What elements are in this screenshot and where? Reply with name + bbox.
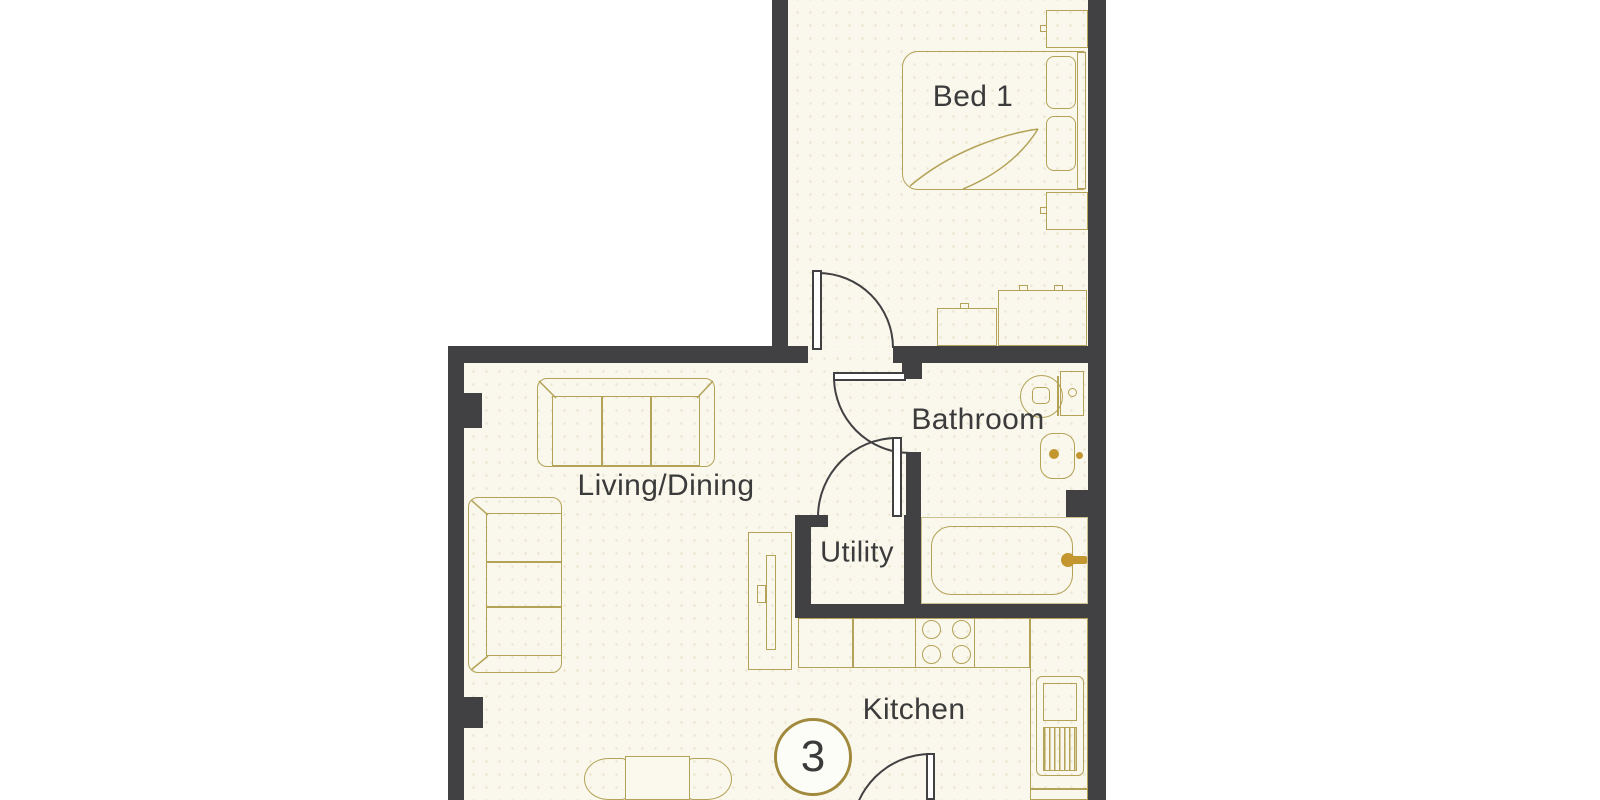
hob-burner	[952, 620, 971, 639]
hob-burner	[952, 645, 971, 664]
sofa-left-cushion-divider	[487, 561, 561, 563]
appliance-door	[1043, 683, 1077, 721]
toilet-seat-line	[1057, 376, 1059, 416]
kitchen-door-leaf	[926, 753, 935, 800]
dresser-knob	[1054, 285, 1063, 291]
wall-living-top	[448, 346, 788, 363]
wall-right-outer	[1088, 0, 1106, 800]
basin-tap	[1076, 452, 1083, 459]
bathroom-door-leaf	[833, 372, 906, 381]
wall-pier	[464, 697, 483, 728]
appliance-vent	[1043, 727, 1077, 771]
sofa-left-cushion-divider	[487, 606, 561, 608]
nightstand-knob	[1040, 207, 1047, 214]
tv-mount	[757, 585, 766, 603]
sofa-top-cushion-divider	[650, 397, 652, 465]
wall-bedroom-door-stub	[788, 346, 808, 363]
wall-kitchen-top	[795, 604, 1088, 618]
bath-faucet-spout	[1072, 556, 1087, 564]
hob-burner	[922, 620, 941, 639]
counter-divider	[1030, 788, 1088, 790]
floorplan-canvas: Bed 1 Bathroom Living/Dining Utility Kit…	[0, 0, 1600, 800]
room-label-kitchen: Kitchen	[863, 693, 966, 727]
toilet-flush-plate	[1032, 387, 1050, 404]
room-label-bed1: Bed 1	[933, 80, 1013, 114]
wall-bathroom-pier	[1066, 490, 1088, 517]
sofa-left-seat-cushions	[486, 513, 562, 656]
wall-living-left	[448, 346, 464, 800]
kitchen-counter-top	[798, 618, 1030, 668]
wall-bedroom-bottom	[893, 346, 1106, 363]
plot-number: 3	[801, 732, 825, 782]
dining-chair-left	[584, 758, 628, 800]
dining-table	[625, 756, 690, 800]
wall-pier	[464, 393, 482, 428]
wall-utility-left	[795, 515, 811, 615]
utility-door-leaf	[892, 437, 902, 517]
wall-utility-right	[904, 515, 921, 615]
dresser-large	[998, 290, 1087, 346]
dresser-knob	[1019, 285, 1028, 291]
room-label-bathroom: Bathroom	[911, 403, 1044, 437]
nightstand-knob	[1040, 25, 1047, 32]
dresser-small	[937, 308, 997, 346]
room-label-utility: Utility	[820, 537, 894, 570]
tv-screen	[766, 555, 776, 650]
plot-number-badge: 3	[774, 718, 852, 796]
wall-bedroom-left	[772, 0, 788, 363]
pillow	[1046, 116, 1076, 171]
sofa-top-seat-cushions	[552, 396, 700, 466]
wall-hall-bathroom	[906, 452, 921, 515]
sofa-top-cushion-divider	[601, 397, 603, 465]
headboard	[1077, 52, 1086, 189]
hob-burner	[922, 645, 941, 664]
bathtub-inner	[931, 526, 1073, 595]
bedroom-door-leaf	[812, 270, 822, 350]
nightstand-bottom	[1046, 192, 1088, 230]
pillow	[1046, 56, 1076, 109]
counter-divider	[852, 618, 854, 668]
basin-drain	[1049, 449, 1059, 459]
toilet-cistern-button	[1068, 388, 1077, 397]
room-label-living-dining: Living/Dining	[578, 469, 755, 503]
dresser-knob	[960, 303, 969, 309]
nightstand-top	[1046, 10, 1088, 48]
